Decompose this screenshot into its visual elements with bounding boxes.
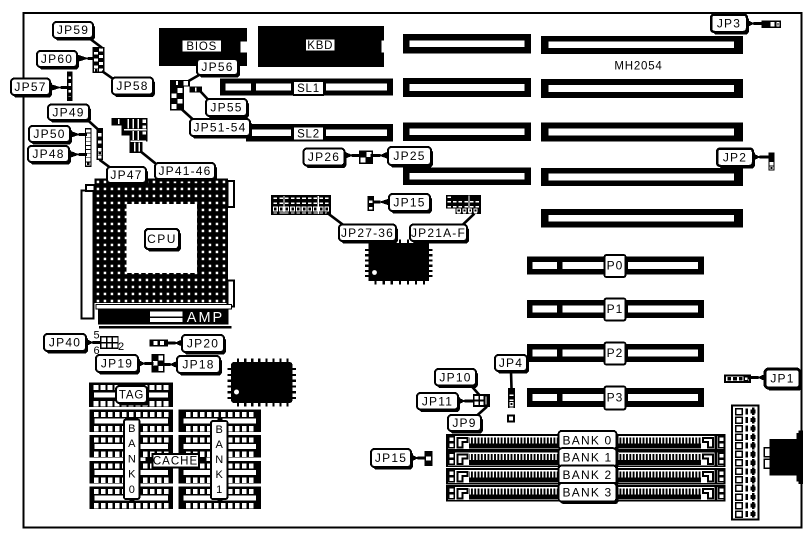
svg-text:JP60: JP60	[41, 52, 73, 66]
svg-text:P2: P2	[607, 346, 624, 360]
svg-text:JP15: JP15	[375, 451, 407, 465]
svg-text:JP11: JP11	[422, 394, 453, 408]
svg-text:1: 1	[216, 484, 222, 496]
svg-text:B: B	[128, 423, 135, 435]
svg-text:P3: P3	[607, 391, 624, 405]
svg-text:N: N	[215, 454, 223, 466]
svg-text:JP41-46: JP41-46	[158, 164, 211, 178]
svg-text:JP10: JP10	[439, 370, 471, 384]
svg-text:BIOS: BIOS	[186, 41, 217, 53]
svg-text:5: 5	[93, 330, 99, 342]
svg-text:CPU: CPU	[147, 232, 177, 246]
svg-text:A: A	[128, 438, 136, 450]
svg-text:BANK 0: BANK 0	[563, 433, 613, 447]
svg-text:JP27-36: JP27-36	[341, 226, 394, 240]
svg-text:N: N	[128, 453, 136, 465]
svg-text:TAG: TAG	[119, 389, 144, 401]
svg-text:P1: P1	[607, 302, 624, 316]
svg-text:BANK 2: BANK 2	[563, 468, 613, 482]
svg-text:JP18: JP18	[182, 358, 214, 372]
svg-text:JP57: JP57	[14, 80, 46, 94]
svg-text:0: 0	[129, 484, 135, 496]
svg-text:JP15: JP15	[393, 196, 425, 210]
svg-text:CACHE: CACHE	[153, 456, 198, 468]
svg-text:SL1: SL1	[297, 83, 320, 95]
svg-text:JP2: JP2	[723, 150, 747, 164]
svg-text:JP58: JP58	[116, 79, 148, 93]
svg-text:BANK 1: BANK 1	[563, 451, 613, 465]
svg-text:P0: P0	[607, 259, 624, 273]
svg-text:K: K	[216, 469, 224, 481]
svg-text:JP47: JP47	[110, 168, 142, 182]
svg-text:MH2054: MH2054	[614, 61, 662, 73]
svg-text:A: A	[216, 439, 224, 451]
svg-text:SL2: SL2	[297, 128, 320, 140]
svg-text:JP19: JP19	[101, 357, 133, 371]
svg-text:JP25: JP25	[393, 149, 425, 163]
svg-text:JP49: JP49	[52, 105, 84, 119]
svg-text:JP40: JP40	[49, 336, 81, 350]
svg-text:B: B	[216, 424, 223, 436]
svg-text:JP59: JP59	[57, 23, 89, 37]
svg-text:KBD: KBD	[307, 40, 333, 52]
svg-text:JP9: JP9	[452, 416, 476, 430]
svg-text:JP4: JP4	[499, 356, 523, 370]
svg-text:JP20: JP20	[187, 337, 219, 351]
svg-text:JP1: JP1	[770, 372, 794, 386]
svg-text:JP56: JP56	[201, 60, 233, 74]
svg-text:BANK 3: BANK 3	[563, 485, 613, 499]
svg-text:K: K	[128, 469, 136, 481]
svg-text:2: 2	[118, 341, 124, 353]
svg-text:JP21A-F: JP21A-F	[411, 226, 466, 240]
svg-text:JP55: JP55	[210, 101, 242, 115]
svg-text:JP51-54: JP51-54	[193, 121, 246, 135]
svg-text:JP48: JP48	[32, 147, 64, 161]
svg-text:JP50: JP50	[33, 127, 65, 141]
svg-text:JP26: JP26	[308, 150, 340, 164]
svg-text:JP3: JP3	[717, 16, 741, 30]
svg-text:AMP: AMP	[187, 310, 224, 326]
